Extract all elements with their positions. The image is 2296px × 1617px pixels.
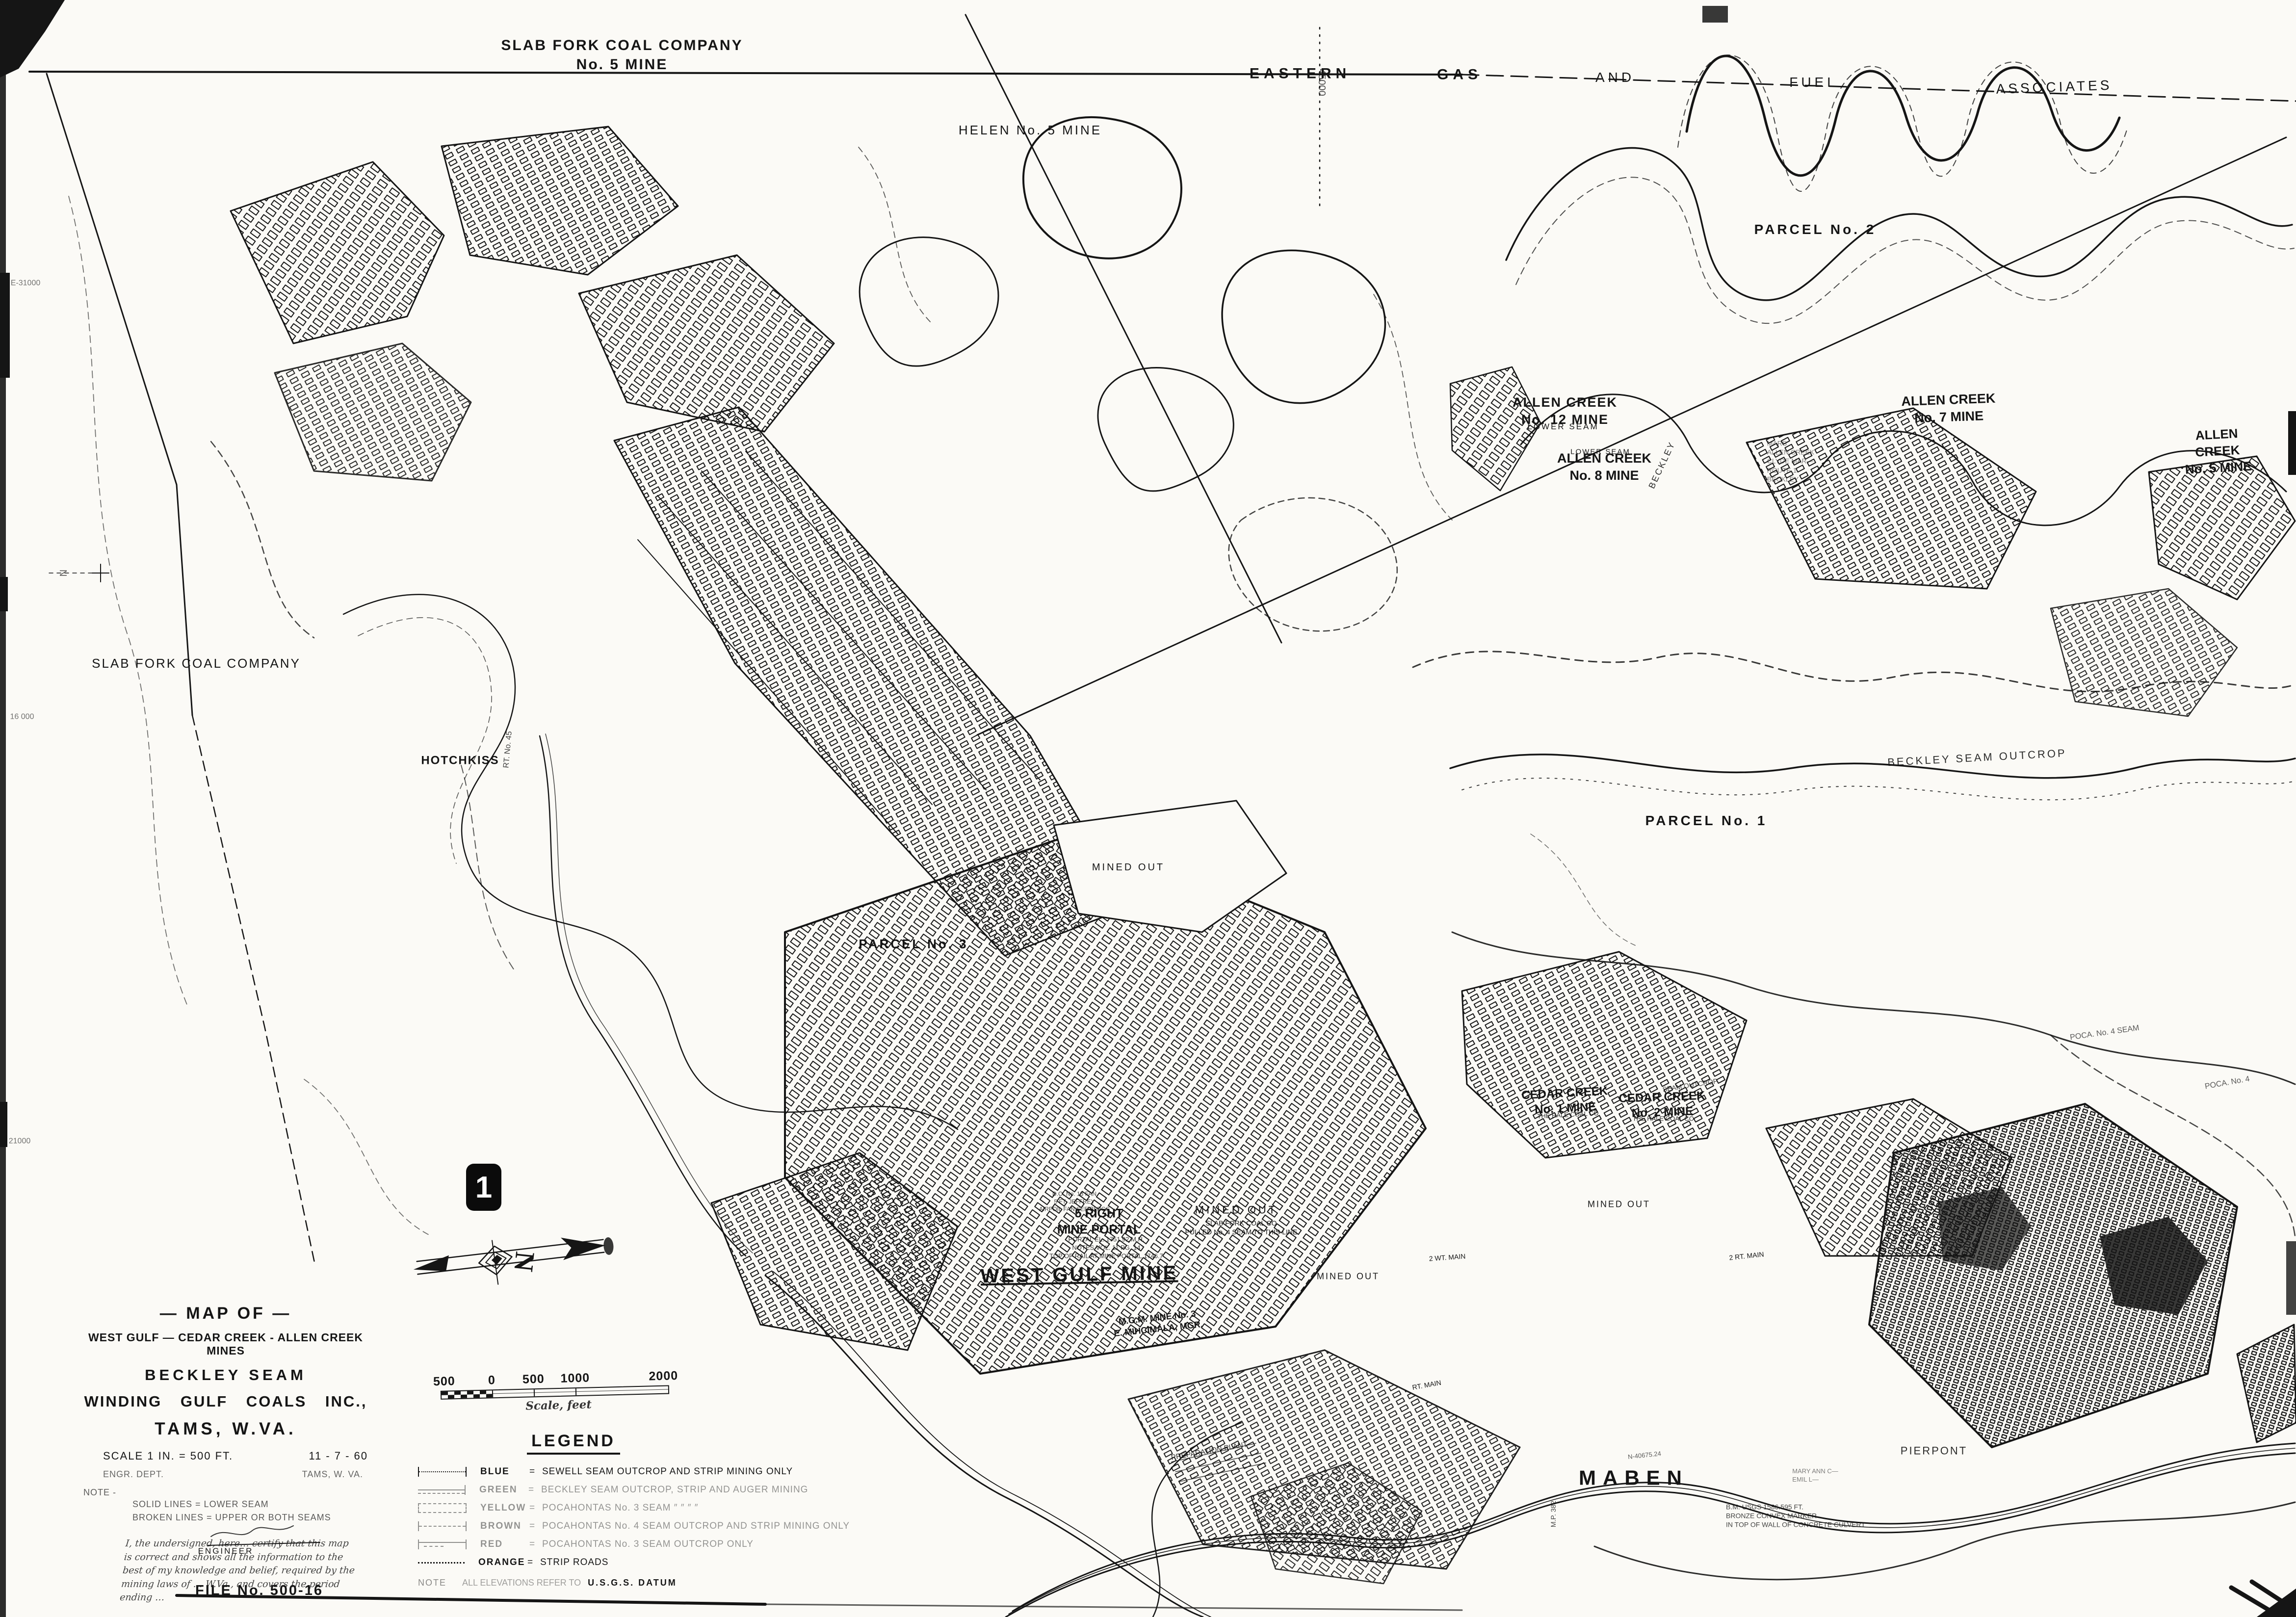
title-dept-loc: TAMS, W. VA. [302, 1469, 363, 1480]
legend-swatch-green [418, 1485, 466, 1495]
title-mines-line: WEST GULF — CEDAR CREEK - ALLEN CREEK MI… [69, 1331, 383, 1357]
label-beckley-seam-outcrop: BECKLEY SEAM OUTCROP [1887, 746, 2067, 770]
page-marker: 1 [466, 1164, 501, 1211]
note-label: NOTE - [83, 1487, 116, 1497]
scale-label: 0 [488, 1373, 496, 1387]
legend-row-yellow: YELLOW = POCAHONTAS No. 3 SEAM ″ ″ ″ ″ [418, 1503, 742, 1513]
label-slab-fork-coal-company: SLAB FORK COAL COMPANY [92, 655, 301, 672]
scale-caption: Scale, feet [499, 1397, 618, 1413]
label-mgm-mine-no-3: M.G.M. MINE No. 3 E. MIHCIMALA, MGR. [1112, 1307, 1203, 1340]
label-2-rt-main: 2 RT. MAIN [1729, 1250, 1765, 1262]
label-rt-no-45: RT. No. 45 [501, 731, 515, 769]
label-parcel-no-1: PARCEL No. 1 [1645, 812, 1768, 830]
label-slab-fork-coal-co: SLAB FORK COAL CO PULLED No. 4 SEAM TO T… [1185, 1219, 1298, 1236]
title-dept: ENGR. DEPT. [103, 1469, 164, 1480]
label-allen-creek-no-5-mine: ALLEN CREEK No. 5 MINE [2177, 424, 2258, 478]
label-grid-45000: 45000 [1315, 69, 1328, 96]
legend-swatch-orange [418, 1558, 465, 1567]
title-seam-line: BECKLEY SEAM [69, 1366, 383, 1384]
label-poca-no-4: POCA. No. 4 [2204, 1074, 2251, 1093]
scale-label: 2000 [649, 1369, 678, 1383]
label-and: AND [1595, 69, 1635, 86]
title-notes: NOTE - SOLID LINES = LOWER SEAM BROKEN L… [69, 1487, 383, 1524]
label-portal-notes: PORTAL EL. 1751.92 M.H. NOTES VOL. 11 PG… [1049, 1236, 1163, 1261]
label-rt-main: RT. MAIN [1411, 1378, 1442, 1392]
label-slab-fork-no5-mine: SLAB FORK COAL COMPANY No. 5 MINE [501, 36, 743, 74]
engineer-signature-label: ENGINEER [162, 1546, 289, 1556]
legend-swatch-blue [418, 1467, 467, 1477]
scale-label: 500 [522, 1372, 545, 1387]
scale-bar-checker [442, 1390, 493, 1399]
legend-row-brown: BROWN = POCAHONTAS No. 4 SEAM OUTCROP AN… [418, 1521, 742, 1532]
legend-row-orange: ORANGE = STRIP ROADS [418, 1557, 742, 1568]
label-allen-creek-no-8-mine: ALLEN CREEK No. 8 MINE [1557, 450, 1651, 484]
label-allen-creek-no-7-mine: ALLEN CREEK No. 7 MINE [1901, 390, 1996, 428]
label-mined-out-1: MINED OUT [1092, 861, 1165, 874]
title-map-of: — MAP OF — [69, 1304, 383, 1323]
label-parcel-no-3: PARCEL No. 3 [859, 936, 968, 953]
label-lower-seam-12: LOWER SEAM [1527, 421, 1598, 432]
note-broken-lines: BROKEN LINES = UPPER OR BOTH SEAMS [83, 1511, 383, 1524]
label-associates: ASSOCIATES [1996, 77, 2113, 99]
label-preparation-plant: PREPARATION PLANT [1171, 1440, 1249, 1463]
scale-bar-rule [441, 1385, 669, 1399]
mine-map-sheet: N SLAB FORK COAL COMPANY No. 5 MINEHELEN… [0, 0, 2296, 1617]
label-bm-usgs: B.M. USGS 1586.595 FT. BRONZE CONVEX MAR… [1726, 1503, 1865, 1530]
label-pierpont: PIERPONT [1901, 1444, 1967, 1459]
legend-row-red: RED = POCAHONTAS No. 3 SEAM OUTCROP ONLY [418, 1539, 742, 1550]
label-fuel: FUEL [1789, 74, 1838, 91]
page-marker-number: 1 [475, 1170, 492, 1205]
label-grid-16000: 16 000 [10, 712, 34, 723]
legend-row-blue: BLUE = SEWELL SEAM OUTCROP AND STRIP MIN… [418, 1466, 742, 1477]
scale-bar: 500 0 500 1000 2000 Scale, feet [440, 1369, 677, 1416]
title-scale: SCALE 1 IN. = 500 FT. [103, 1450, 233, 1462]
note-solid-lines: SOLID LINES = LOWER SEAM [83, 1498, 383, 1511]
label-mined-out-2: MINED OUT [1195, 1203, 1278, 1218]
label-grid-e31000: E-31000 [11, 279, 41, 289]
legend: LEGEND BLUE = SEWELL SEAM OUTCROP AND ST… [418, 1432, 742, 1588]
label-west-gulf-mine: WEST GULF MINE [980, 1260, 1178, 1289]
legend-swatch-yellow [418, 1503, 467, 1513]
legend-row-green: GREEN = BECKLEY SEAM OUTCROP, STRIP AND … [418, 1485, 742, 1495]
label-eastern: EASTERN [1250, 64, 1351, 83]
label-gas: GAS [1437, 65, 1482, 84]
label-north-n: N [57, 570, 70, 576]
title-company: WINDING GULF COALS INC., [69, 1393, 383, 1410]
title-date: 11 - 7 - 60 [309, 1450, 368, 1462]
label-mars-address: MARS ALLEN CREEK CLYDE MAR— ROUTE 1 BECK… [1767, 439, 1814, 484]
label-parcel-no-2: PARCEL No. 2 [1754, 221, 1877, 238]
label-helen-no5-mine: HELEN No. 5 MINE [959, 122, 1102, 139]
legend-note: NOTE ALL ELEVATIONS REFER TO U.S.G.S. DA… [418, 1578, 742, 1588]
label-maben: MABEN [1579, 1465, 1689, 1492]
label-fan-note: D.O. No. 13 FAN 5 FT. JEFFREY AIRFOIL FA… [1039, 1191, 1110, 1214]
label-mined-out-3: MINED OUT [1317, 1271, 1380, 1282]
label-poca-no-4-seam: POCA. No. 4 SEAM [2069, 1023, 2140, 1043]
legend-swatch-brown [418, 1521, 467, 1531]
label-2-wt-main: 2 WT. MAIN [1429, 1252, 1466, 1263]
label-mary-ann: MARY ANN C— EMIL L— [1792, 1467, 1838, 1484]
legend-swatch-red [418, 1539, 467, 1549]
label-mp-382: M.P. 382 [1549, 1501, 1558, 1527]
label-hotchkiss: HOTCHKISS [421, 753, 499, 768]
title-location: TAMS, W.VA. [69, 1419, 383, 1439]
label-mined-out-4: MINED OUT [1588, 1199, 1650, 1210]
label-hale-coal-co-2: THE HALE COAL CO. [1633, 1115, 1696, 1123]
legend-title: LEGEND [527, 1432, 620, 1455]
label-n-40675: N-40675.24 [1627, 1450, 1661, 1461]
scale-label: 500 [433, 1374, 455, 1389]
scale-label: 1000 [560, 1371, 590, 1385]
file-number: FILE No. 500-16 [195, 1583, 323, 1599]
title-block: — MAP OF — WEST GULF — CEDAR CREEK - ALL… [69, 1304, 383, 1605]
label-grid-21000: 21000 [9, 1137, 31, 1147]
